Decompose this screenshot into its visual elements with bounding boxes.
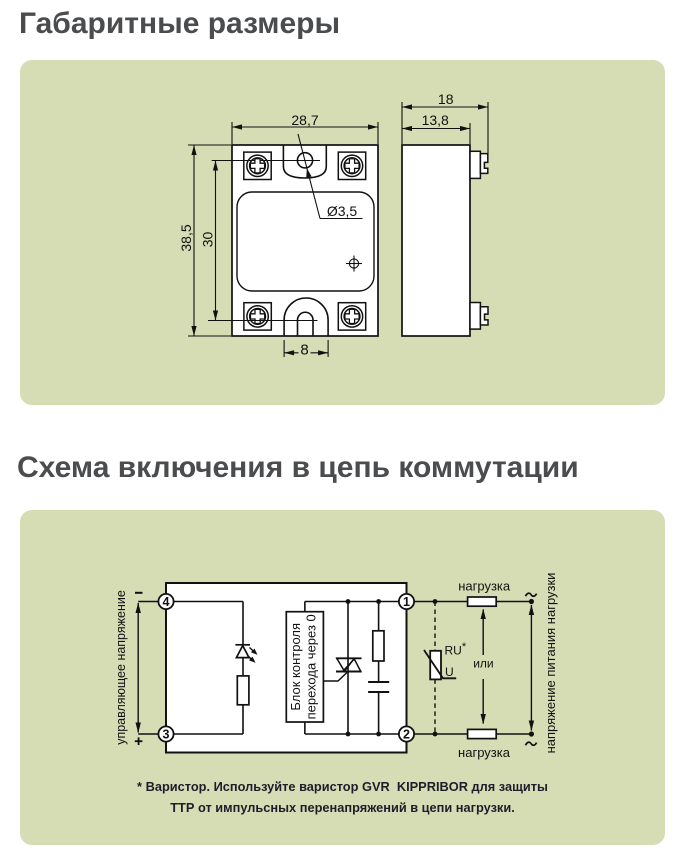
svg-text:28,7: 28,7 (291, 112, 318, 128)
svg-text:13,8: 13,8 (422, 112, 449, 128)
svg-text:30: 30 (200, 232, 216, 248)
svg-text:или: или (473, 657, 493, 671)
svg-text:U: U (445, 665, 454, 679)
svg-text:8: 8 (300, 342, 308, 359)
svg-text:управляющее напряжение: управляющее напряжение (114, 590, 128, 745)
svg-text:нагрузка: нагрузка (458, 579, 511, 594)
svg-text:Ø3,5: Ø3,5 (327, 203, 358, 219)
svg-text:нагрузка: нагрузка (458, 745, 511, 760)
svg-text:38,5: 38,5 (178, 224, 194, 251)
svg-text:3: 3 (163, 728, 170, 742)
svg-text:4: 4 (163, 595, 170, 609)
svg-text:напряжение питания нагрузки: напряжение питания нагрузки (543, 573, 558, 754)
svg-text:перехода через 0: перехода через 0 (303, 614, 318, 719)
svg-text:RU*: RU* (445, 641, 467, 658)
svg-text:Блок контроля: Блок контроля (288, 623, 303, 711)
svg-text:2: 2 (403, 728, 410, 742)
svg-text:1: 1 (403, 595, 410, 609)
svg-text:18: 18 (438, 91, 454, 107)
